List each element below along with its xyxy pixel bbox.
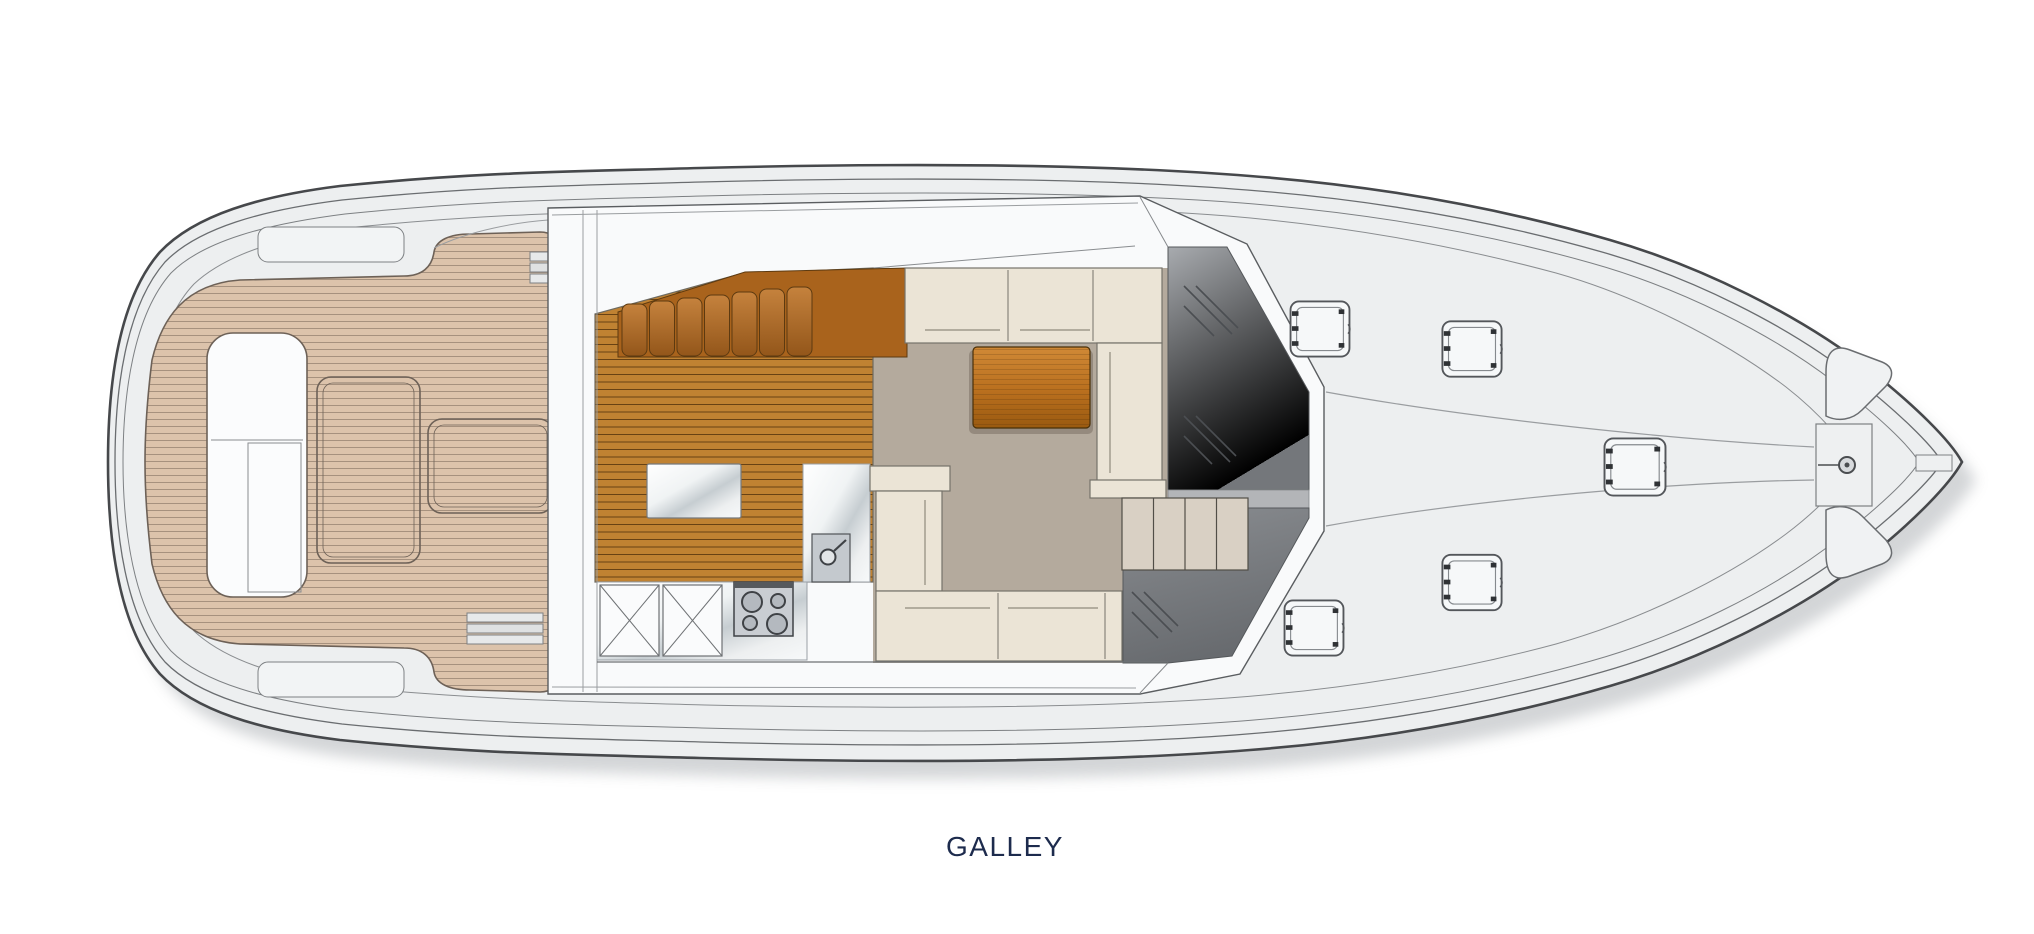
cooktop-burner-4 bbox=[767, 614, 787, 634]
salon-sofa-starboard bbox=[905, 268, 1162, 343]
deckhouse bbox=[548, 196, 1324, 694]
deck-plan: GALLEY bbox=[0, 0, 2034, 934]
bench-cushion-5 bbox=[732, 292, 757, 356]
foredeck-hatch-1 bbox=[1291, 301, 1350, 356]
bench-cushion-4 bbox=[705, 295, 730, 356]
cooktop-burner-1 bbox=[742, 592, 762, 612]
gunwale-panel-top bbox=[258, 227, 404, 262]
sofa-armrest-forward bbox=[1090, 480, 1166, 498]
stern-bench-hatch bbox=[207, 333, 307, 597]
foredeck-hatch-2 bbox=[1285, 600, 1344, 655]
cooktop-burner-3 bbox=[743, 616, 757, 630]
galley-label: GALLEY bbox=[946, 831, 1064, 862]
bench-cushion-3 bbox=[677, 298, 702, 356]
salon-table bbox=[969, 347, 1093, 434]
bench-cushion-1 bbox=[622, 304, 647, 356]
cooktop-burner-2 bbox=[771, 594, 785, 608]
cabinet-x-1 bbox=[600, 585, 659, 656]
gunwale-panel-bottom bbox=[258, 662, 404, 697]
bench-cushion-6 bbox=[760, 289, 785, 356]
sink bbox=[812, 534, 850, 582]
bench-cushion-2 bbox=[650, 301, 675, 356]
cockpit-hatch-aft bbox=[317, 377, 420, 563]
galley-island bbox=[647, 464, 741, 518]
sink-faucet bbox=[821, 550, 836, 565]
salon-sofa-forward bbox=[1090, 343, 1166, 498]
bow-fitting bbox=[1916, 455, 1952, 471]
foredeck-hatch-3 bbox=[1442, 321, 1502, 376]
cabinet-x-2 bbox=[663, 585, 722, 656]
sofa-armrest-aft bbox=[870, 466, 950, 491]
foredeck-hatch-5 bbox=[1442, 555, 1502, 610]
anchor-windlass bbox=[1816, 424, 1872, 506]
cooktop bbox=[734, 582, 793, 636]
companionway-steps bbox=[1122, 498, 1248, 570]
cockpit-steps-port bbox=[467, 613, 543, 644]
cockpit-hatch-mid bbox=[428, 419, 553, 513]
deck-plan-canvas: GALLEY bbox=[0, 0, 2034, 934]
bench-cushion-7 bbox=[787, 287, 812, 356]
aft-cockpit bbox=[145, 220, 585, 697]
foredeck-hatch-4 bbox=[1605, 438, 1666, 495]
